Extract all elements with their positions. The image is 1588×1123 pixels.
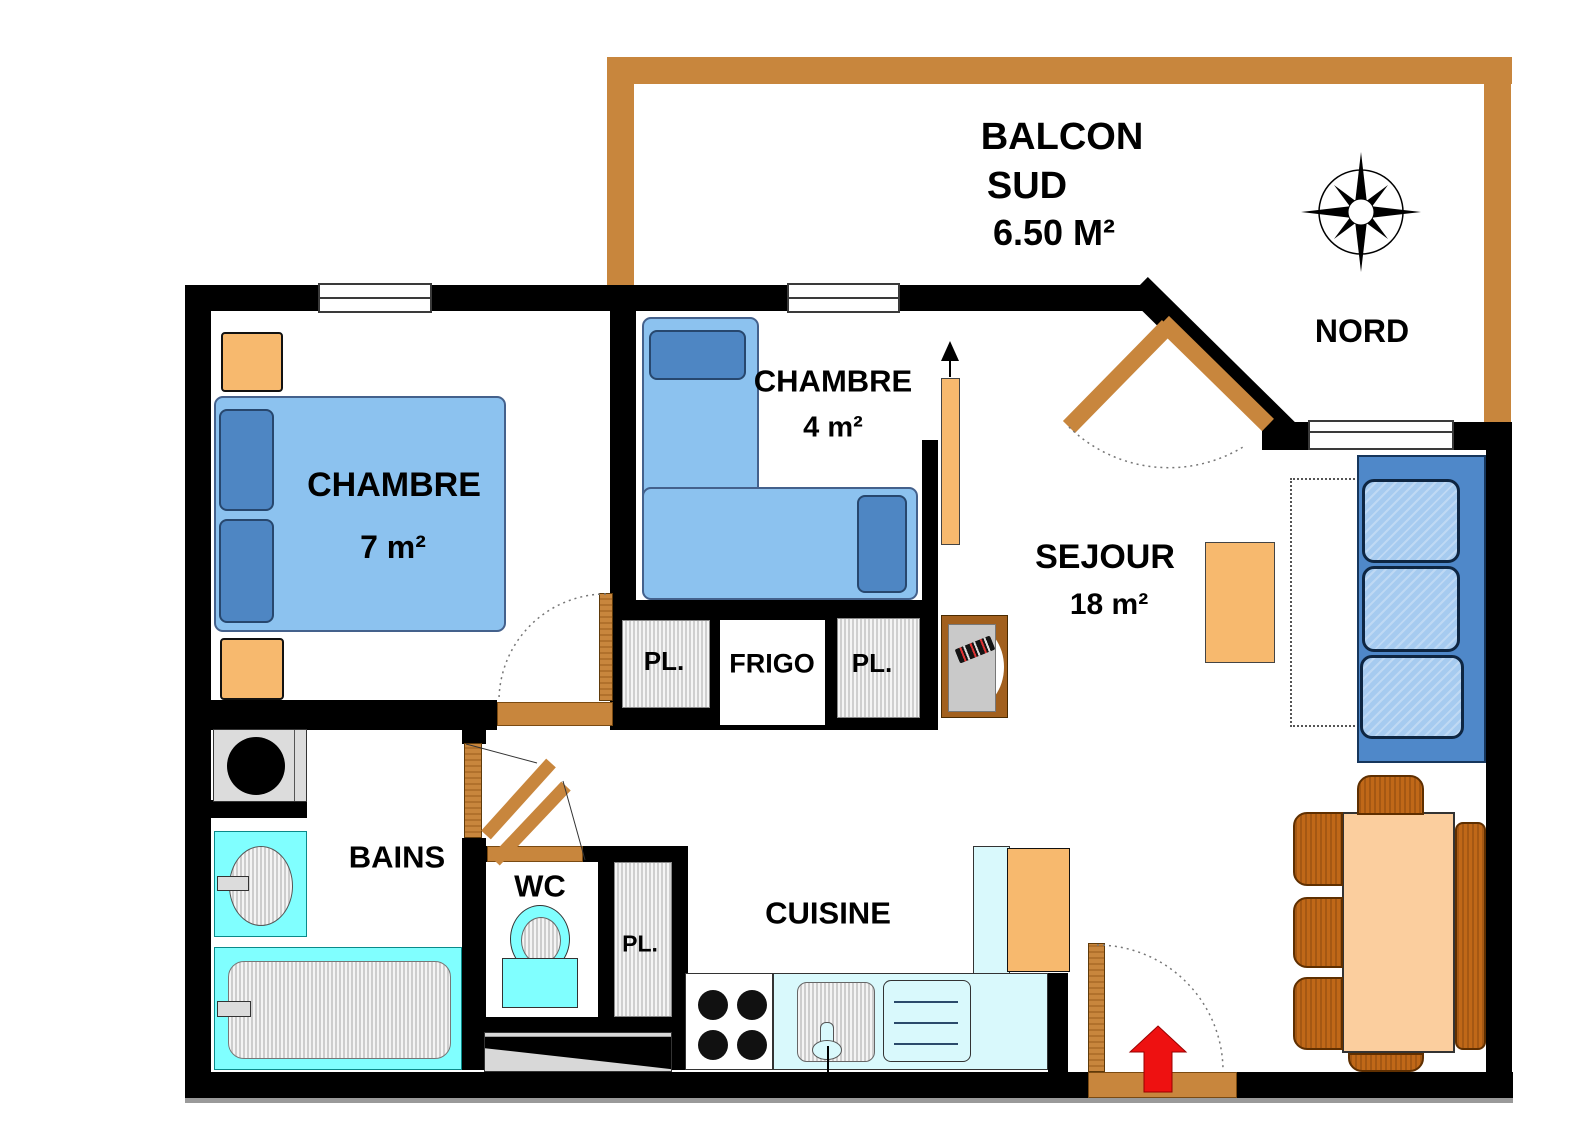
wall-wc-right (598, 846, 614, 1032)
washer-panel-line (294, 730, 295, 801)
sofa-cushion (1362, 479, 1460, 563)
sejour-area: 18 m² (1070, 590, 1148, 620)
chambre7-door (599, 593, 613, 701)
toilet-tank (502, 958, 578, 1008)
bathroom-sink-unit (214, 831, 307, 937)
wall-left (185, 285, 211, 1098)
wc-label: WC (514, 871, 566, 902)
balcony-label-line2: SUD (987, 167, 1067, 205)
window-sejour (1308, 420, 1454, 450)
pillow (857, 495, 907, 593)
toilet-seat (521, 917, 561, 964)
pl1-label: PL. (644, 648, 684, 674)
sliding-panel (941, 378, 960, 545)
bains-label: BAINS (349, 842, 445, 873)
nightstand (220, 638, 284, 700)
window-glass-line (320, 297, 430, 299)
pillow (219, 519, 274, 623)
cuisine-label: CUISINE (765, 898, 891, 929)
dining-table (1342, 812, 1455, 1053)
chambre7-door-arc (499, 594, 606, 701)
bathtub-faucet (217, 1001, 251, 1017)
chambre4-area: 4 m² (803, 414, 863, 443)
kitchen-counter-vertical (973, 846, 1010, 974)
wall-chambre7-bottom (185, 700, 497, 730)
pl3-label: PL. (622, 933, 658, 956)
washing-machine (213, 729, 307, 802)
drawer-line (894, 1043, 958, 1045)
floor-plan: BALCON SUD 6.50 M² NORD CHAMBRE 7 m² CHA… (0, 0, 1588, 1123)
balcony-label-line1: BALCON (981, 118, 1144, 156)
pl2-label: PL. (852, 650, 892, 676)
wedge-black (485, 1033, 671, 1071)
balcony-wall-top (607, 57, 1512, 84)
burner (737, 990, 767, 1020)
chambre7-door-threshold (497, 702, 613, 726)
wall-bottom (185, 1072, 1513, 1098)
chair (1293, 897, 1343, 968)
entry-step-wedge (484, 1032, 672, 1072)
wall-chambre4-right (922, 440, 938, 600)
balcony-door-arc (1069, 427, 1243, 468)
bains-door (464, 743, 482, 838)
wall-washer-shelf (185, 800, 307, 818)
balcony-wall-right (1484, 57, 1511, 434)
bathtub-basin (228, 961, 451, 1059)
window-chambre4 (787, 283, 900, 313)
pillow (219, 409, 274, 511)
balcony-door-open (1069, 326, 1168, 427)
drawer-line (894, 1001, 958, 1003)
coffee-table (1205, 542, 1275, 663)
sofa-cushion (1360, 655, 1464, 739)
wall-kitchen-entry (1048, 973, 1068, 1072)
chair (1357, 775, 1424, 815)
entry-door (1088, 943, 1105, 1072)
chair (1348, 1053, 1424, 1072)
chair (1293, 977, 1343, 1050)
wc-door-threshold (487, 846, 583, 862)
kitchen-cabinet (1007, 848, 1070, 972)
wall-bains-right-bottom (462, 838, 486, 1070)
kitchen-drawers (883, 980, 971, 1062)
compass-label: NORD (1315, 315, 1409, 347)
bathtub (214, 947, 462, 1070)
entry-threshold (1088, 1072, 1237, 1098)
frigo-label: FRIGO (729, 651, 815, 678)
bench (1455, 822, 1486, 1050)
nightstand (221, 332, 283, 392)
burner (698, 990, 728, 1020)
wall-diagonal (1138, 287, 1287, 434)
entry-door-arc (1097, 945, 1223, 1071)
wall-window-left-stub (1262, 422, 1310, 450)
window-glass-line (789, 297, 898, 299)
chair (1293, 812, 1343, 886)
chambre7-area: 7 m² (360, 531, 426, 563)
bottom-shadow-line (185, 1098, 1513, 1103)
window-glass-line (1310, 431, 1452, 433)
balcony-label-area: 6.50 M² (993, 215, 1115, 251)
balcony-wall-left (607, 57, 634, 288)
sink-faucet (217, 876, 249, 891)
washer-door (227, 737, 285, 795)
sofa-cushion (1362, 566, 1460, 652)
chambre4-name: CHAMBRE (754, 366, 912, 397)
kitchen-faucet-base (812, 1040, 842, 1060)
stove (685, 973, 773, 1070)
wall-right (1486, 422, 1512, 1098)
vestibule-door-leaf (486, 763, 551, 835)
tv-unit (941, 615, 1008, 718)
sliding-panel-arrow-head (941, 341, 959, 361)
window-chambre7 (318, 283, 432, 313)
burner (737, 1030, 767, 1060)
compass-rose-icon (1296, 148, 1426, 278)
sejour-name: SEJOUR (1035, 540, 1175, 574)
balcony-door-closed (1163, 322, 1268, 425)
wall-bains-right-top (462, 730, 486, 744)
chambre7-name: CHAMBRE (307, 468, 481, 502)
drawer-line (894, 1022, 958, 1024)
pillow (649, 330, 746, 380)
burner (698, 1030, 728, 1060)
wall-chambre-divider (610, 311, 636, 600)
wall-window-right-stub (1452, 422, 1492, 450)
wall-wc-bottom (462, 1017, 688, 1033)
